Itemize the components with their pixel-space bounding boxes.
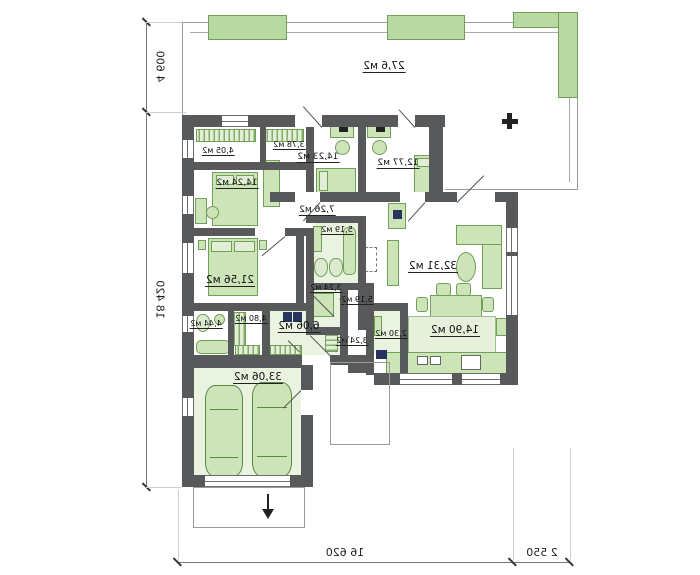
planter [558, 12, 578, 98]
wall [194, 303, 306, 311]
room-label-laundry: 4,80 м2 [234, 314, 267, 324]
coffee-table [456, 252, 476, 282]
room-label-wardrobe-a: 4,05 м2 [201, 146, 234, 156]
extension-line [146, 487, 182, 488]
room-label-hall: 6,06 м2 [277, 320, 320, 333]
window [462, 373, 500, 385]
extension-line [513, 448, 514, 562]
garage-door [205, 475, 290, 487]
car [205, 385, 243, 477]
laundry-shelves [235, 345, 260, 355]
nightstand [198, 240, 206, 250]
bed [316, 168, 356, 194]
driveway-outline [193, 487, 305, 528]
room-label-master-bedroom: 21,56 м2 [205, 274, 255, 287]
dimension-line-vertical [146, 22, 147, 487]
extension-line [570, 448, 571, 562]
room-label-wardrobe-b: 3,78 м2 [272, 140, 305, 150]
dimension-side-total: 18 420 [154, 270, 167, 330]
door-opening [400, 192, 425, 202]
driveway-arrow [262, 494, 274, 520]
wardrobe-shelves [196, 129, 256, 142]
door-opening [255, 228, 285, 236]
entrance-door [302, 355, 330, 365]
dining-table [430, 295, 482, 317]
window [182, 398, 194, 416]
door-opening [301, 390, 313, 415]
planter [208, 15, 287, 40]
dimension-bottom-main: 16 620 [310, 546, 380, 559]
fireplace-icon [393, 210, 402, 219]
extension-line [146, 22, 182, 23]
door-opening [295, 115, 322, 127]
room-label-wc-a: 3,24 м2 [309, 283, 342, 293]
room-label-bedroom-a: 14,23 м2 [296, 152, 339, 163]
floor-plan: 27,6 м2 4,05 м2 3,78 м2 14,23 м2 12,77 м… [0, 0, 700, 575]
sofa-corner [456, 225, 502, 245]
wall [358, 115, 366, 198]
window [400, 373, 452, 385]
room-label-hallway: 7,26 м2 [298, 205, 335, 216]
window [182, 140, 194, 158]
car [252, 382, 292, 477]
room-label-bedroom-b: 12,77 м2 [376, 158, 419, 169]
dining-chair [482, 297, 494, 312]
chair [372, 140, 387, 155]
room-label-bathroom-a: 5,19 м2 [320, 225, 353, 235]
sink-icon [430, 356, 441, 365]
dimension-terrace-depth: 4 600 [154, 42, 167, 92]
room-label-pantry: 2,30 м2 [374, 329, 407, 339]
chair [206, 206, 219, 219]
door-opening [295, 192, 320, 202]
wall [260, 127, 266, 167]
room-label-bathroom-b: 4,44 м2 [189, 319, 222, 329]
toilet [314, 258, 328, 277]
porch-outline [330, 362, 390, 445]
dimension-bottom-porch: 2 550 [512, 546, 572, 559]
room-label-living-room: 32,31 м2 [408, 260, 458, 273]
wall [301, 355, 313, 487]
wall [429, 115, 443, 195]
wall [194, 162, 306, 170]
double-bed [208, 238, 258, 296]
dining-chair [416, 297, 428, 312]
room-label-kitchen: 14,90 м2 [430, 324, 480, 337]
room-label-bedroom-c: 14,24 м2 [215, 178, 258, 189]
sink-icon [417, 356, 428, 365]
wall [228, 311, 234, 355]
window [506, 256, 518, 288]
wall [194, 228, 306, 236]
toilet [329, 258, 343, 277]
wall [182, 355, 313, 368]
window [182, 243, 194, 273]
column-marker [502, 113, 518, 129]
room-label-terrace: 27,6 м2 [362, 60, 405, 73]
window [506, 285, 518, 315]
stove-icon [461, 355, 481, 370]
window [222, 115, 248, 127]
nightstand [259, 240, 267, 250]
wall [296, 236, 304, 311]
room-label-garage: 33,06 м2 [233, 371, 283, 384]
wall [306, 216, 366, 223]
wall [306, 228, 314, 330]
wall [182, 355, 194, 487]
bathtub [196, 340, 230, 354]
window [506, 228, 518, 252]
sofa-corner [482, 244, 502, 289]
window [182, 196, 194, 214]
tv-cabinet [387, 240, 399, 286]
extension-line [146, 112, 186, 113]
boiler-icon [376, 350, 387, 359]
extension-line [178, 490, 179, 562]
planter [387, 15, 465, 40]
wall [358, 216, 366, 330]
